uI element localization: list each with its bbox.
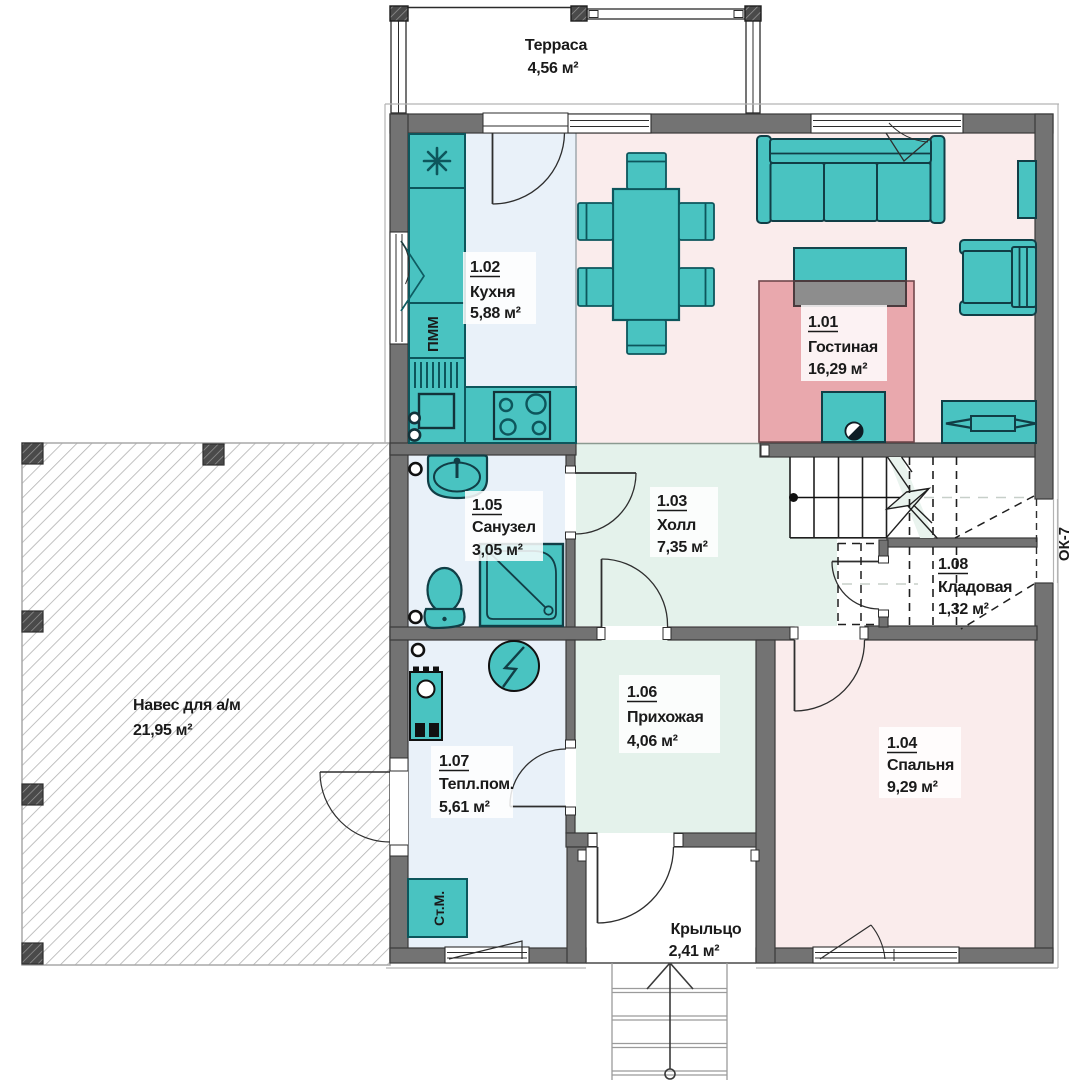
svg-text:5,88 м²: 5,88 м² [470,305,521,322]
svg-text:7,35 м²: 7,35 м² [657,539,708,556]
svg-text:1,32 м²: 1,32 м² [938,601,989,618]
svg-text:1.01: 1.01 [808,314,838,331]
svg-text:1.05: 1.05 [472,497,502,514]
svg-text:1.03: 1.03 [657,493,687,510]
svg-text:1.02: 1.02 [470,259,500,276]
svg-text:Крыльцо: Крыльцо [671,921,742,938]
svg-text:1.07: 1.07 [439,753,469,770]
svg-text:1.08: 1.08 [938,556,968,573]
svg-text:ПММ: ПММ [425,316,442,352]
svg-text:1.04: 1.04 [887,735,917,752]
svg-text:Санузел: Санузел [472,519,536,536]
svg-text:3,05 м²: 3,05 м² [472,542,523,559]
svg-text:Тепл.пом.: Тепл.пом. [439,776,514,793]
svg-text:Гостиная: Гостиная [808,339,878,356]
svg-text:16,29 м²: 16,29 м² [808,361,867,378]
svg-text:2,41 м²: 2,41 м² [669,943,720,960]
svg-text:4,56 м²: 4,56 м² [528,60,579,77]
svg-text:Прихожая: Прихожая [627,709,704,726]
svg-text:Ст.М.: Ст.М. [431,891,447,926]
svg-text:Кухня: Кухня [470,284,515,301]
svg-text:Спальня: Спальня [887,757,954,774]
svg-text:1.06: 1.06 [627,684,657,701]
svg-text:9,29 м²: 9,29 м² [887,779,938,796]
svg-text:4,06 м²: 4,06 м² [627,733,678,750]
svg-text:Навес для а/м: Навес для а/м [133,697,241,714]
svg-text:ОК-7: ОК-7 [1056,527,1073,561]
svg-text:21,95 м²: 21,95 м² [133,722,192,739]
svg-text:Терраса: Терраса [525,37,588,54]
svg-text:Холл: Холл [657,517,696,534]
svg-text:5,61 м²: 5,61 м² [439,799,490,816]
svg-text:Кладовая: Кладовая [938,579,1012,596]
